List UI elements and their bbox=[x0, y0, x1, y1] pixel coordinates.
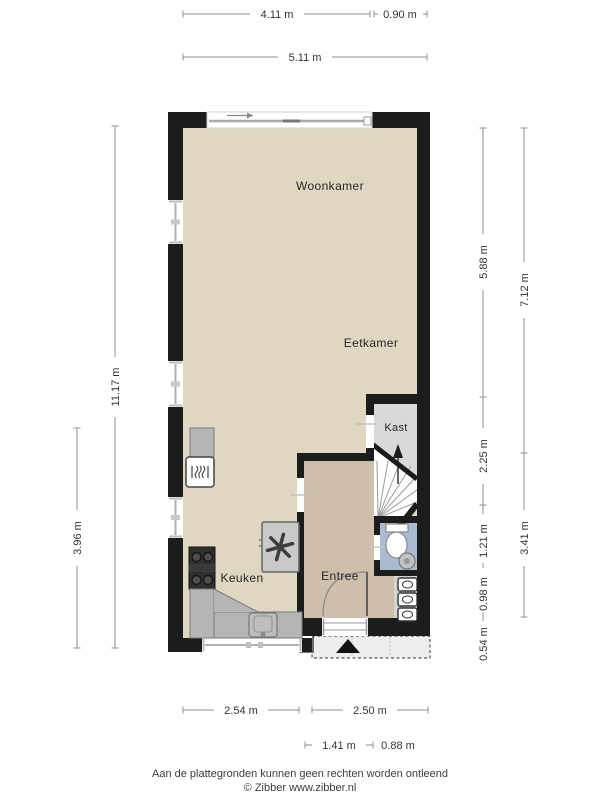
dim-label: 0.90 m bbox=[383, 9, 417, 21]
wall-left-4 bbox=[168, 538, 183, 652]
dim-right-7-12: 7.12 m bbox=[517, 128, 531, 453]
porch bbox=[312, 636, 430, 658]
dim-label: 0.98 m bbox=[478, 577, 490, 611]
wall-toilet-left-top bbox=[374, 523, 380, 535]
wall-toilet-top bbox=[374, 516, 417, 523]
wall-left-3 bbox=[168, 407, 183, 497]
wall-left-1 bbox=[168, 112, 183, 200]
room-label-eetkamer: Eetkamer bbox=[344, 336, 399, 350]
stove-icon bbox=[189, 547, 215, 589]
dim-top-5-11: 5.11 m bbox=[183, 50, 427, 64]
dim-label: 3.41 m bbox=[519, 521, 531, 555]
room-label-kast: Kast bbox=[384, 422, 407, 434]
washbasin-icon bbox=[399, 553, 415, 569]
dim-right-5-88: 5.88 m bbox=[476, 128, 490, 397]
wall-bottom-mid bbox=[302, 638, 312, 652]
sliding-door bbox=[207, 112, 372, 128]
ventilation-unit bbox=[259, 522, 299, 572]
footer-disclaimer: Aan de plattegronden kunnen geen rechten… bbox=[152, 768, 448, 780]
dim-left-3-96: 3.96 m bbox=[70, 428, 84, 648]
footer-copyright: © Zibber www.zibber.nl bbox=[244, 782, 357, 794]
dim-bottom-2-54: 2.54 m bbox=[183, 703, 299, 717]
room-label-woonkamer: Woonkamer bbox=[296, 179, 364, 193]
dim-label: 11.17 m bbox=[110, 368, 122, 407]
dim-bottom-1-41: 1.41 m bbox=[305, 738, 373, 752]
dim-top-4-11: 4.11 m bbox=[183, 7, 370, 21]
dim-right-2-25: 2.25 m bbox=[476, 397, 490, 505]
window-bottom bbox=[202, 638, 302, 652]
floorplan-svg: 4.11 m 0.90 m 5.11 m 11.17 m 3.96 m 5.88… bbox=[0, 0, 600, 800]
appliance-box-2 bbox=[398, 593, 417, 606]
appliance-box-1 bbox=[398, 578, 417, 591]
floorplan-page: 4.11 m 0.90 m 5.11 m 11.17 m 3.96 m 5.88… bbox=[0, 0, 600, 800]
room-label-keuken: Keuken bbox=[220, 571, 263, 585]
wall-kast-left-bottom bbox=[366, 448, 374, 455]
dim-bottom-2-50: 2.50 m bbox=[312, 703, 428, 717]
wall-right bbox=[417, 112, 430, 636]
dim-label: 0.88 m bbox=[381, 740, 415, 752]
dim-label: 5.11 m bbox=[289, 52, 322, 64]
appliance-box-3 bbox=[398, 608, 417, 621]
wall-left-2 bbox=[168, 244, 183, 361]
wall-entree-top bbox=[297, 453, 374, 461]
dim-label: 2.50 m bbox=[353, 705, 387, 717]
dim-right-0-98: 0.98 m bbox=[476, 563, 490, 620]
dim-label: 3.96 m bbox=[72, 521, 84, 555]
dim-label: 2.25 m bbox=[478, 439, 490, 473]
dim-label: 4.11 m bbox=[261, 9, 294, 21]
wall-bottom-left bbox=[168, 638, 202, 652]
window-left-3 bbox=[168, 497, 183, 538]
dim-label: 2.54 m bbox=[224, 705, 258, 717]
window-left-2 bbox=[168, 361, 183, 407]
dim-label: 0.54 m bbox=[478, 627, 490, 661]
dim-label: 1.21 m bbox=[478, 524, 490, 558]
kitchen-counter-top bbox=[190, 428, 214, 457]
wall-kast-top bbox=[366, 394, 417, 404]
dim-right-0-54: 0.54 m bbox=[476, 612, 490, 667]
dim-top-0-90: 0.90 m bbox=[374, 7, 427, 21]
dim-left-11-17: 11.17 m bbox=[108, 126, 122, 648]
room-label-entree: Entree bbox=[321, 569, 359, 583]
window-left-1 bbox=[168, 200, 183, 244]
oven-icon bbox=[186, 457, 214, 487]
dim-label: 7.12 m bbox=[519, 273, 531, 307]
dim-right-3-41: 3.41 m bbox=[517, 453, 531, 617]
dim-bottom-0-88: 0.88 m bbox=[376, 738, 421, 752]
wall-toilet-bottom bbox=[374, 570, 417, 576]
opening-kast-door bbox=[366, 415, 374, 448]
dim-label: 1.41 m bbox=[322, 740, 356, 752]
sink-icon bbox=[249, 613, 277, 637]
dim-label: 5.88 m bbox=[478, 245, 490, 279]
dim-right-1-21: 1.21 m bbox=[476, 505, 490, 568]
utility-appliances bbox=[398, 578, 417, 621]
